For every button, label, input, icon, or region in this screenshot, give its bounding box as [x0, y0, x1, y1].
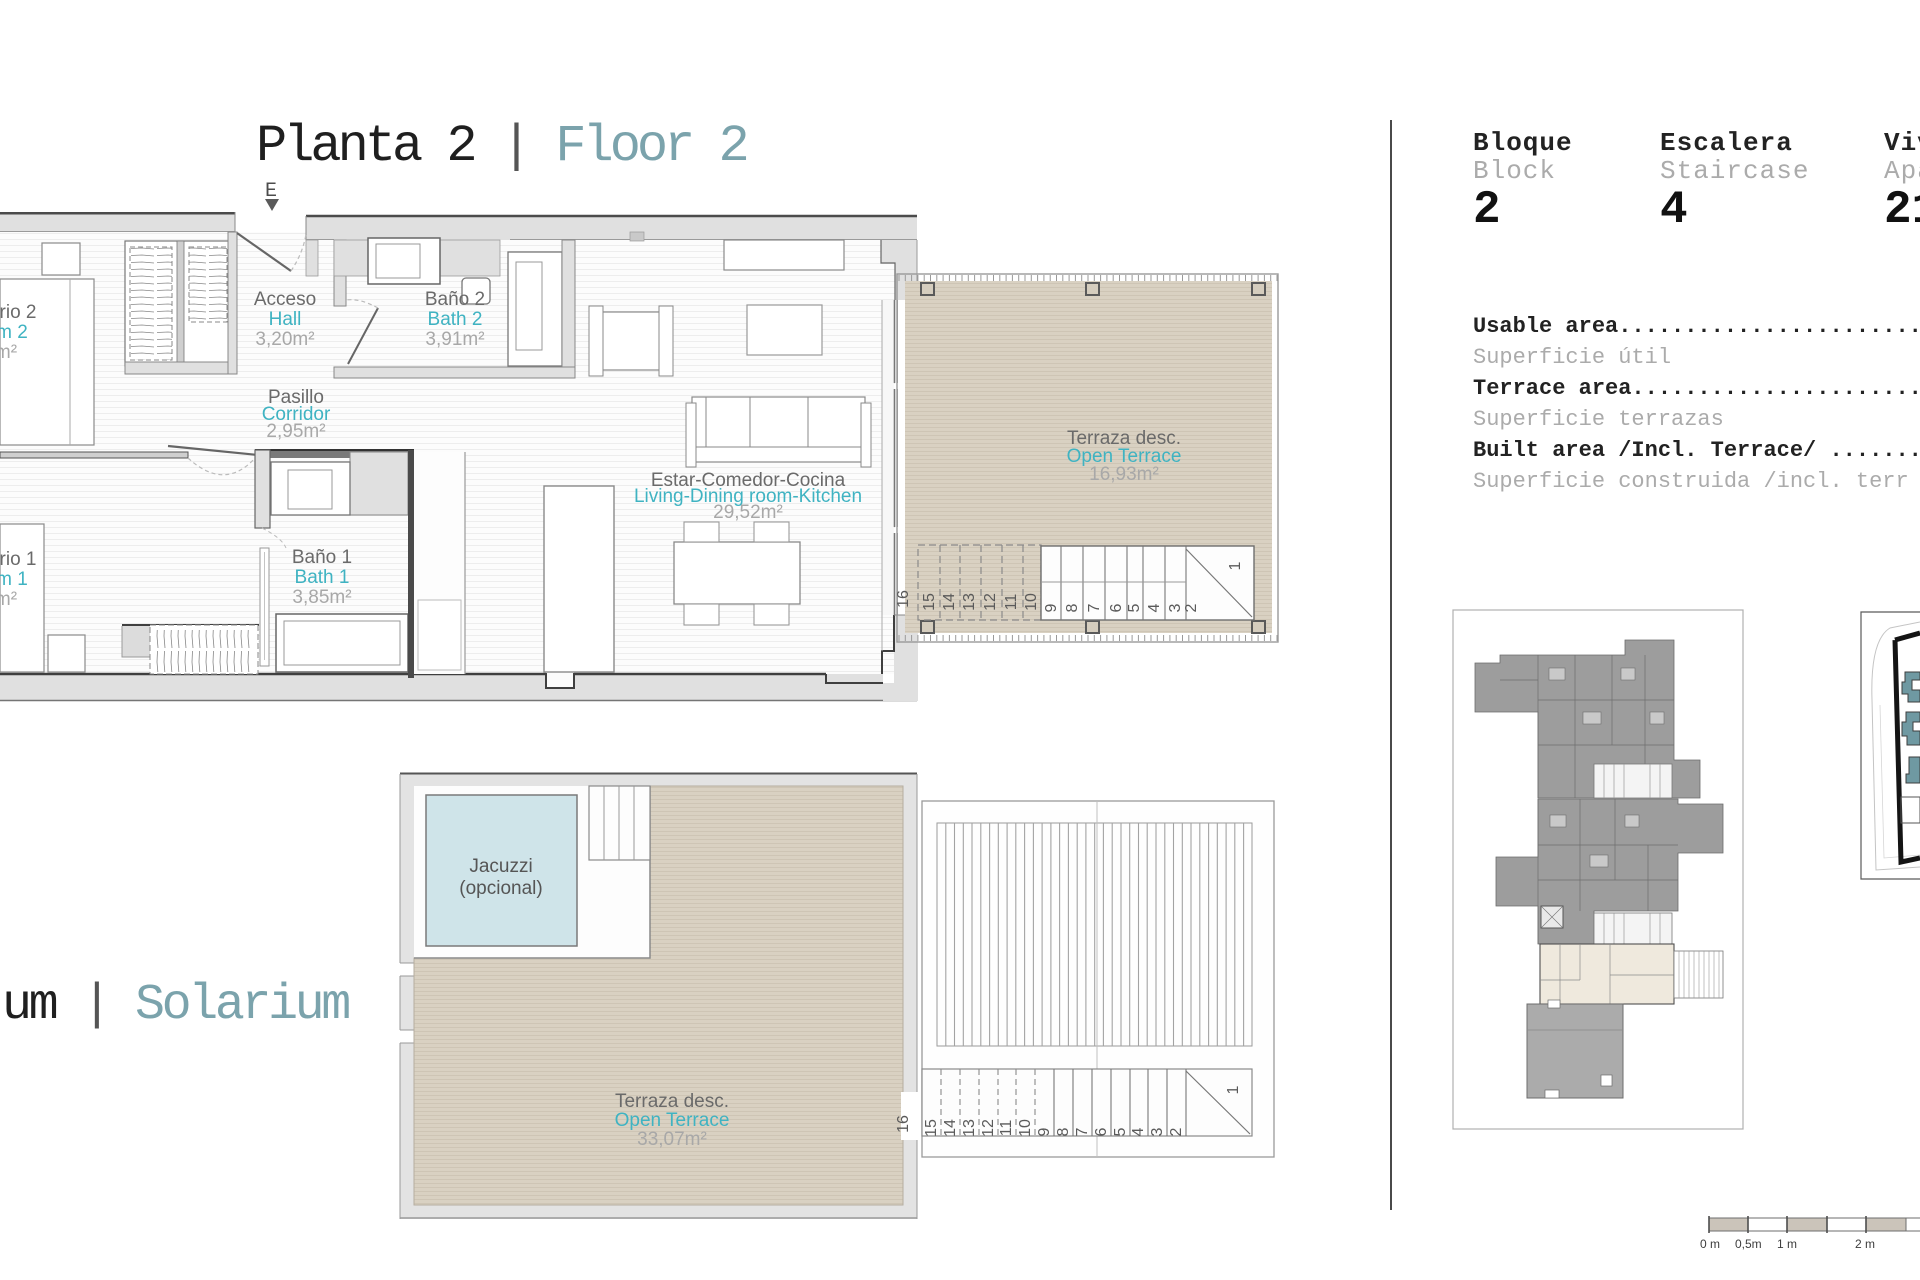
svg-text:Open Terrace: Open Terrace	[615, 1110, 730, 1131]
svg-text:Hall: Hall	[269, 309, 302, 330]
svg-text:4: 4	[1660, 184, 1688, 236]
svg-text:Bath 2: Bath 2	[428, 309, 483, 330]
svg-text:5: 5	[1112, 1127, 1129, 1136]
svg-text:2: 2	[1183, 603, 1200, 612]
svg-text:1 m: 1 m	[1777, 1237, 1797, 1251]
svg-text:14: 14	[941, 593, 958, 611]
svg-text:13: 13	[961, 1119, 978, 1137]
svg-text:Superficie útil: Superficie útil	[1473, 345, 1671, 370]
svg-text:21: 21	[1884, 184, 1920, 236]
svg-text:3,20m²: 3,20m²	[255, 329, 314, 350]
svg-text:16,93m²: 16,93m²	[1089, 464, 1159, 485]
svg-text:0,5m: 0,5m	[1735, 1237, 1762, 1251]
svg-text:4: 4	[1146, 603, 1163, 612]
svg-text:15: 15	[923, 1119, 940, 1137]
svg-text:rio 1: rio 1	[0, 549, 36, 570]
svg-text:7: 7	[1074, 1127, 1091, 1136]
svg-text:8: 8	[1064, 603, 1081, 612]
svg-text:Baño 2: Baño 2	[425, 289, 485, 310]
svg-text:Planta 2 | Floor 2: Planta 2 | Floor 2	[256, 117, 747, 176]
svg-text:5: 5	[1126, 603, 1143, 612]
svg-text:Vivienda: Vivienda	[1884, 128, 1920, 158]
svg-text:Jacuzzi: Jacuzzi	[469, 856, 532, 877]
svg-text:2,95m²: 2,95m²	[266, 421, 325, 442]
svg-text:Staircase: Staircase	[1660, 156, 1809, 186]
svg-text:7: 7	[1086, 603, 1103, 612]
svg-text:1: 1	[1227, 561, 1244, 570]
svg-text:29,52m²: 29,52m²	[713, 502, 783, 523]
svg-text:Built area /Incl. Terrace/ ...: Built area /Incl. Terrace/ .............…	[1473, 438, 1920, 463]
svg-text:11: 11	[1003, 594, 1020, 611]
svg-text:Superficie terrazas: Superficie terrazas	[1473, 407, 1724, 432]
svg-text:Terrace area..................: Terrace area............................…	[1473, 376, 1920, 401]
svg-text:4: 4	[1130, 1127, 1147, 1136]
svg-text:Block: Block	[1473, 156, 1556, 186]
svg-text:0 m: 0 m	[1700, 1237, 1720, 1251]
svg-text:Bath 1: Bath 1	[295, 567, 350, 588]
svg-text:Bloque: Bloque	[1473, 128, 1573, 158]
svg-text:rio 2: rio 2	[0, 302, 36, 323]
svg-text:Escalera: Escalera	[1660, 128, 1793, 158]
svg-text:m 1: m 1	[0, 569, 28, 590]
svg-text:2: 2	[1473, 184, 1501, 236]
svg-text:Acceso: Acceso	[254, 289, 316, 310]
svg-text:3,85m²: 3,85m²	[292, 587, 351, 608]
svg-text:Terraza desc.: Terraza desc.	[615, 1091, 729, 1112]
svg-text:(opcional): (opcional)	[459, 878, 542, 899]
svg-text:2: 2	[1168, 1127, 1185, 1136]
svg-text:33,07m²: 33,07m²	[637, 1129, 707, 1150]
svg-text:3: 3	[1167, 603, 1184, 612]
svg-text:m 2: m 2	[0, 322, 28, 343]
svg-text:3,91m²: 3,91m²	[425, 329, 484, 350]
svg-text:8: 8	[1055, 1127, 1072, 1136]
svg-text:16: 16	[895, 590, 912, 608]
svg-text:15: 15	[921, 593, 938, 611]
svg-text:m²: m²	[0, 342, 17, 363]
svg-text:m²: m²	[0, 589, 17, 610]
svg-text:10: 10	[1017, 1119, 1034, 1137]
svg-text:1: 1	[1225, 1085, 1242, 1094]
svg-text:12: 12	[982, 593, 999, 611]
svg-text:2 m: 2 m	[1855, 1237, 1875, 1251]
svg-text:Usable area...................: Usable area.............................…	[1473, 314, 1920, 339]
svg-text:6: 6	[1093, 1127, 1110, 1136]
svg-text:9: 9	[1043, 603, 1060, 612]
svg-text:14: 14	[942, 1119, 959, 1137]
svg-text:11: 11	[998, 1120, 1015, 1137]
svg-text:3: 3	[1149, 1127, 1166, 1136]
svg-text:Apartment: Apartment	[1884, 156, 1920, 186]
svg-text:12: 12	[980, 1119, 997, 1137]
svg-text:13: 13	[961, 593, 978, 611]
svg-text:10: 10	[1023, 593, 1040, 611]
svg-text:Baño 1: Baño 1	[292, 547, 352, 568]
svg-text:Superficie construida /incl. t: Superficie construida /incl. terr	[1473, 469, 1909, 494]
svg-text:9: 9	[1036, 1127, 1053, 1136]
svg-text:um | Solarium: um | Solarium	[2, 977, 349, 1034]
svg-text:6: 6	[1108, 603, 1125, 612]
svg-text:16: 16	[895, 1115, 912, 1133]
